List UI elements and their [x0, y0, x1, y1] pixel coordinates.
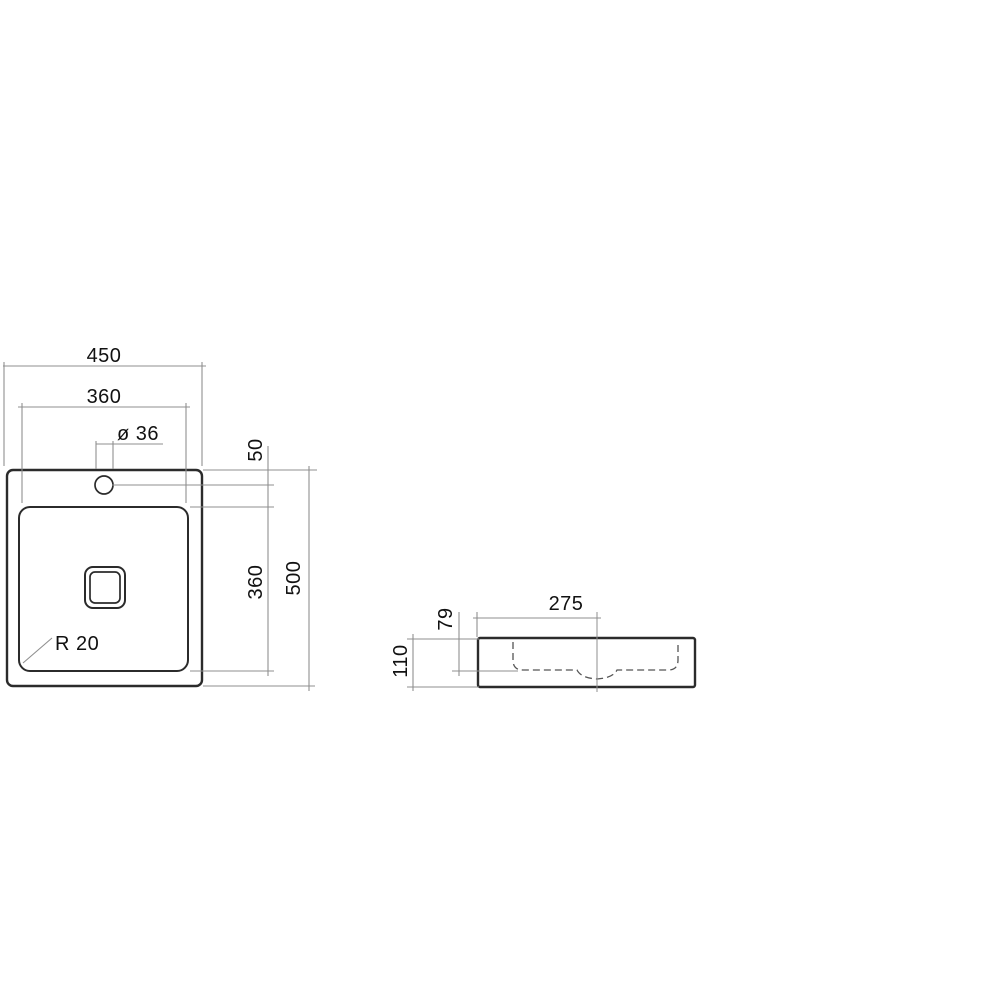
plan-view: 450 360 ø 36: [3, 345, 317, 691]
faucet-hole: [95, 476, 113, 494]
basin-inner-outline: [19, 507, 188, 671]
sink-side-outline: [478, 638, 695, 687]
dimension-label-basin-corner-radius: R 20: [55, 633, 99, 655]
dimension-label-overall-height: 110: [390, 644, 412, 677]
dimension-label-drain-offset: 275: [549, 593, 584, 615]
drain-inner: [90, 572, 120, 603]
dimension-label-faucet-offset: 50: [245, 438, 267, 461]
basin-hidden-profile: [513, 642, 678, 679]
dimension-overall-height: 110: [390, 634, 479, 691]
side-view: 275 79 110: [390, 593, 695, 692]
dimension-label-basin-width: 360: [87, 386, 122, 408]
dimension-label-overall-depth: 500: [283, 561, 305, 596]
dimension-faucet-offset-and-basin-length: 50 360: [112, 438, 317, 676]
dimension-drain-offset: 275: [473, 593, 601, 637]
dimension-basin-corner-radius: R 20: [23, 633, 99, 663]
dimension-faucet-hole-diameter: ø 36: [96, 423, 163, 469]
dimension-label-overall-width: 450: [87, 345, 122, 367]
sink-technical-drawing: 450 360 ø 36: [0, 0, 1000, 1000]
dimension-label-faucet-hole-diameter: ø 36: [117, 423, 159, 445]
leader-line: [23, 638, 52, 663]
dimension-label-basin-inner-depth: 79: [435, 607, 457, 630]
technical-drawing-sheet: 450 360 ø 36: [0, 0, 1000, 1000]
dimension-label-basin-length: 360: [245, 565, 267, 600]
sink-outer-outline: [7, 470, 202, 686]
